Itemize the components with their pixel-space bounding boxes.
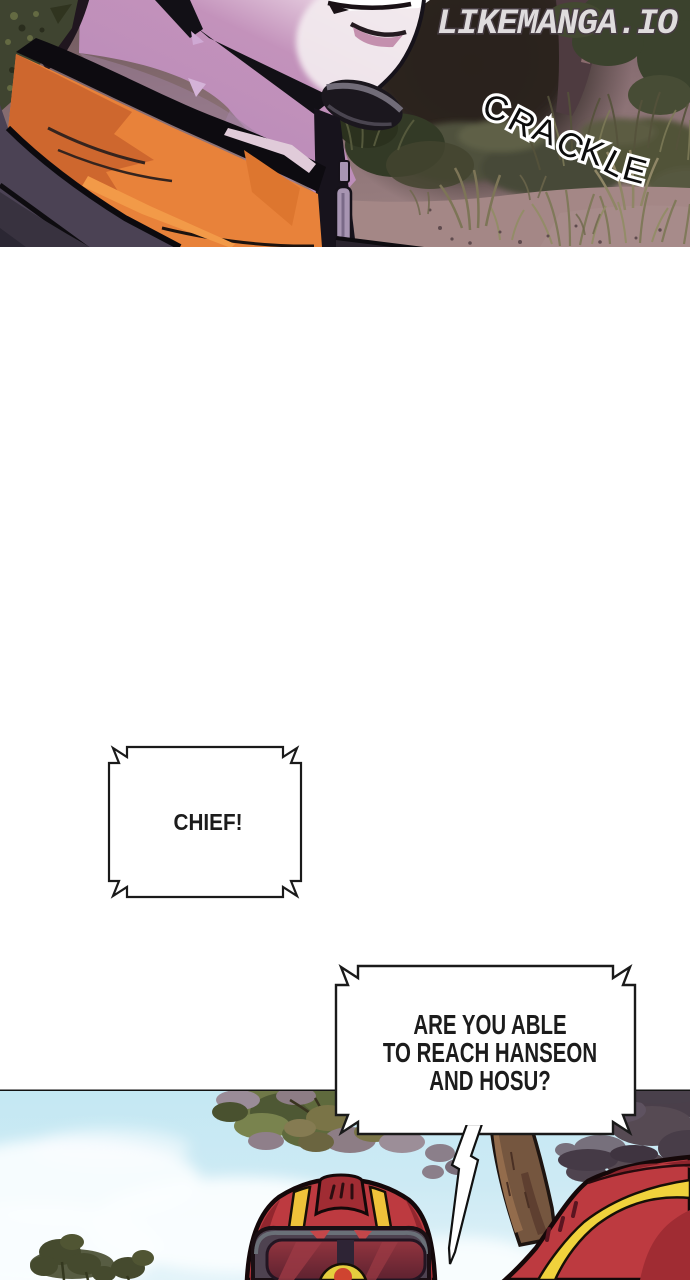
svg-text:ARE YOU ABLE: ARE YOU ABLE [413, 1010, 566, 1041]
svg-text:AND HOSU?: AND HOSU? [429, 1066, 550, 1097]
svg-text:TO REACH HANSEON: TO REACH HANSEON [383, 1038, 597, 1069]
svg-text:LIKEMANGA.IO: LIKEMANGA.IO [437, 4, 678, 44]
svg-text:CHIEF!: CHIEF! [174, 809, 243, 835]
